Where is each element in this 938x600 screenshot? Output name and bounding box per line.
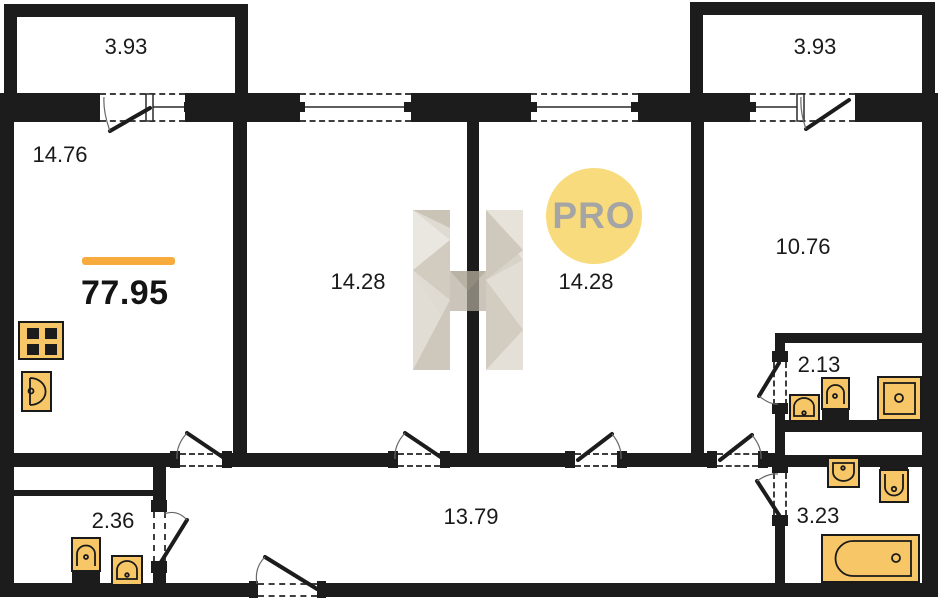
- door-opening: [153, 512, 166, 562]
- wall-segment: [0, 93, 100, 122]
- wall-segment: [627, 453, 707, 467]
- wall-segment: [0, 583, 258, 597]
- door-jamb: [151, 561, 167, 573]
- door-opening: [773, 362, 787, 405]
- toilet-icon: [72, 538, 100, 583]
- pro-badge: PRO: [546, 168, 642, 264]
- balcony-door-opening: [750, 93, 855, 122]
- door-jamb: [772, 515, 788, 526]
- door-opening: [575, 453, 617, 467]
- wall-segment: [14, 490, 160, 496]
- door-opening: [717, 453, 758, 467]
- wall-segment: [690, 2, 935, 15]
- wall-segment: [450, 453, 565, 467]
- room-area-label-bedroom-small: 10.76: [775, 234, 830, 260]
- stove-icon: [19, 322, 63, 359]
- wall-segment: [4, 4, 248, 17]
- door-jamb: [317, 581, 326, 598]
- shower-tray-icon: [878, 377, 921, 420]
- room-area-label-bedroom-left: 14.28: [330, 269, 385, 295]
- wall-segment: [785, 455, 922, 467]
- room-area-label-wc: 2.36: [92, 508, 135, 534]
- balcony-door-opening: [100, 93, 185, 122]
- room-area-label-hallway: 13.79: [443, 504, 498, 530]
- wall-segment: [0, 93, 14, 597]
- wall-segment: [638, 93, 750, 122]
- floor-plan: PRO 77.95 3.93 3.93 14.76 14.28 14.28 10…: [0, 0, 938, 600]
- door-jamb: [151, 500, 167, 512]
- window-opening: [531, 93, 638, 122]
- bathtub-icon: [822, 535, 919, 582]
- door-jamb: [772, 403, 788, 414]
- wall-segment: [0, 453, 170, 467]
- sink-icon: [790, 395, 819, 421]
- room-area-label-balcony-right: 3.93: [794, 34, 837, 60]
- total-area-accent-line: [82, 257, 175, 265]
- sink-icon: [112, 556, 142, 585]
- room-area-label-bathroom-top: 2.13: [798, 352, 841, 378]
- room-area-label-balcony-left: 3.93: [105, 34, 148, 60]
- door-jamb: [707, 451, 717, 468]
- door-jamb: [170, 451, 180, 468]
- toilet-icon: [822, 378, 849, 421]
- wall-segment: [785, 420, 922, 432]
- wall-segment: [411, 93, 531, 122]
- wall-segment: [775, 333, 922, 343]
- door-jamb: [249, 581, 258, 598]
- door-jamb: [772, 462, 788, 473]
- door-opening: [398, 453, 440, 467]
- room-area-label-bedroom-right: 14.28: [558, 269, 613, 295]
- wall-segment: [467, 122, 479, 453]
- door-opening: [773, 473, 787, 516]
- door-jamb: [758, 451, 768, 468]
- wall-segment: [775, 516, 785, 583]
- wall-segment: [235, 4, 248, 93]
- room-area-label-bathroom-bottom: 3.23: [797, 503, 840, 529]
- room-area-label-living: 14.76: [32, 142, 87, 168]
- wall-segment: [232, 453, 388, 467]
- door-jamb: [222, 451, 232, 468]
- wall-segment: [317, 583, 938, 597]
- pro-badge-label: PRO: [552, 195, 635, 237]
- door-jamb: [565, 451, 575, 468]
- door-jamb: [772, 351, 788, 362]
- door-jamb: [440, 451, 450, 468]
- total-area-value: 77.95: [81, 274, 169, 313]
- entrance-door-opening: [258, 583, 317, 597]
- wall-segment: [922, 93, 938, 597]
- door-jamb: [388, 451, 398, 468]
- door-opening: [180, 453, 222, 467]
- wall-segment: [690, 2, 703, 93]
- window-opening: [300, 93, 411, 122]
- kitchen-sink-icon: [22, 372, 51, 411]
- wall-segment: [922, 2, 935, 93]
- wall-segment: [4, 4, 17, 93]
- wall-segment: [185, 93, 300, 122]
- wall-segment: [691, 122, 704, 453]
- door-jamb: [617, 451, 627, 468]
- wall-segment: [233, 122, 247, 453]
